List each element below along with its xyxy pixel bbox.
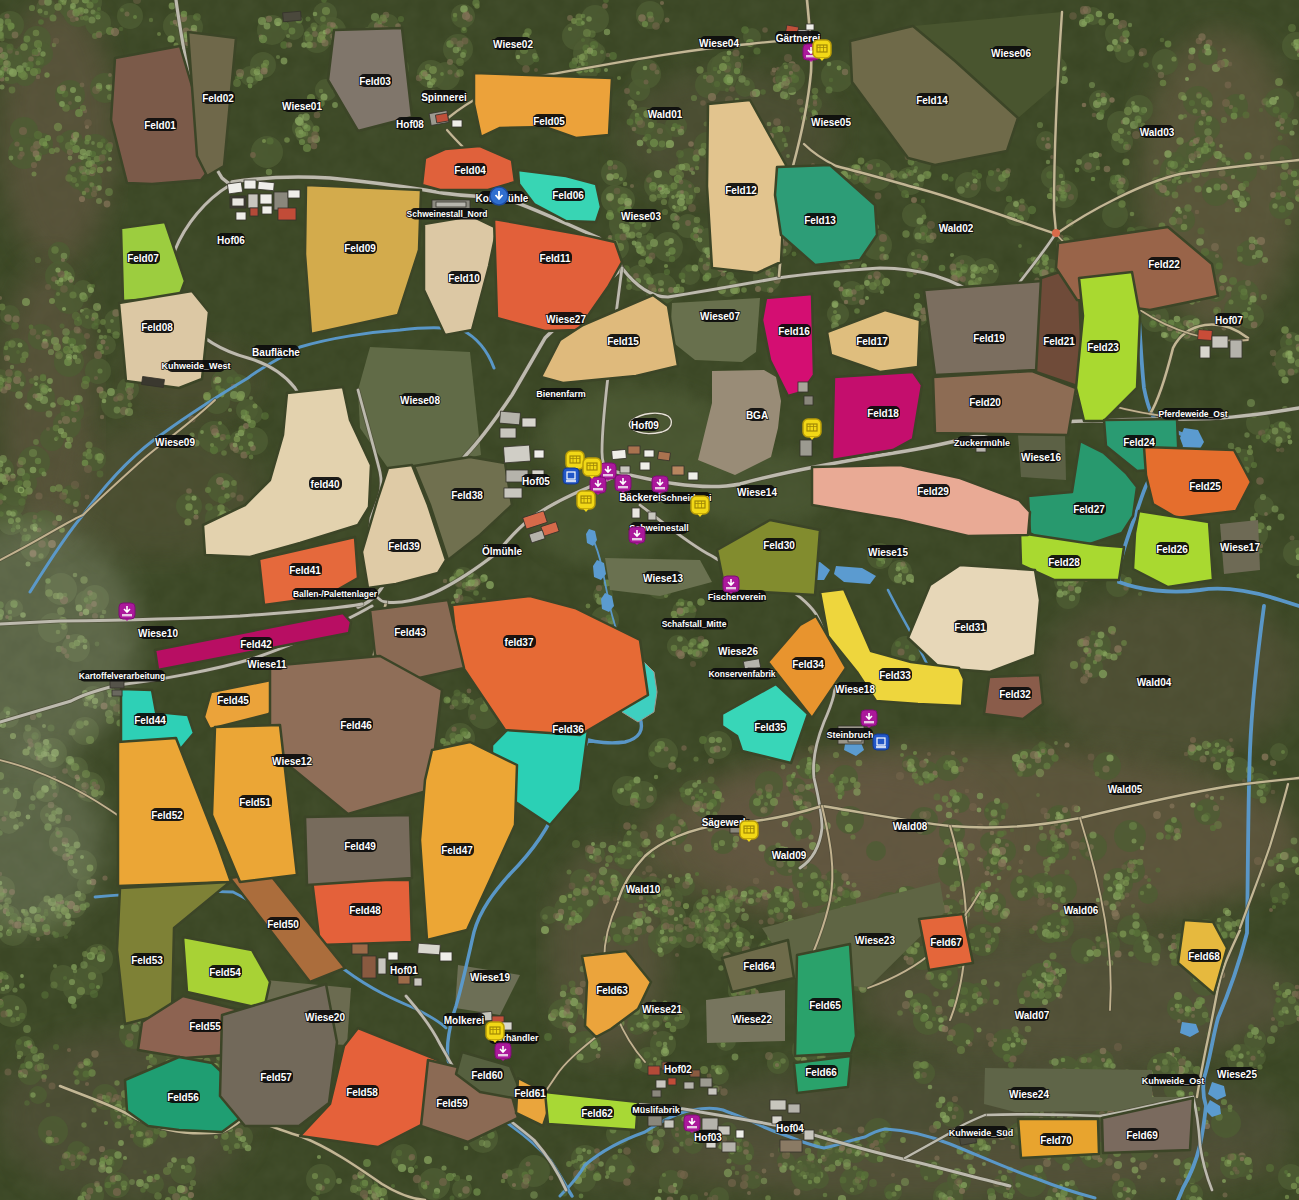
svg-text:Kuhweide_Ost: Kuhweide_Ost [1142,1076,1205,1086]
svg-text:BGA: BGA [746,410,768,421]
svg-text:Wiese10: Wiese10 [138,628,178,639]
svg-text:Feld19: Feld19 [973,333,1005,344]
svg-text:Hof02: Hof02 [664,1064,692,1075]
svg-text:Feld39: Feld39 [388,541,420,552]
svg-text:Feld69: Feld69 [1126,1130,1158,1141]
svg-text:Feld45: Feld45 [217,695,249,706]
svg-text:Feld03: Feld03 [359,76,391,87]
svg-text:Wiese19: Wiese19 [470,972,510,983]
svg-text:Wiese13: Wiese13 [643,573,683,584]
svg-text:Feld49: Feld49 [344,841,376,852]
svg-text:Feld24: Feld24 [1123,437,1155,448]
svg-text:Feld64: Feld64 [743,961,775,972]
svg-text:Wiese26: Wiese26 [718,646,758,657]
svg-text:Wiese11: Wiese11 [247,659,287,670]
svg-text:Feld08: Feld08 [141,322,173,333]
svg-text:Feld46: Feld46 [340,720,372,731]
svg-text:Wiese17: Wiese17 [1220,542,1260,553]
svg-text:Schafstall_Mitte: Schafstall_Mitte [662,619,727,629]
svg-text:Feld17: Feld17 [856,336,888,347]
svg-text:Wiese16: Wiese16 [1021,452,1061,463]
svg-text:Feld07: Feld07 [127,253,159,264]
svg-text:Hof08: Hof08 [396,119,424,130]
svg-text:Feld32: Feld32 [999,689,1031,700]
svg-text:Feld20: Feld20 [969,397,1001,408]
svg-text:Feld04: Feld04 [454,165,486,176]
svg-text:Hof07: Hof07 [1215,315,1243,326]
svg-text:Wald09: Wald09 [772,850,807,861]
svg-text:Feld02: Feld02 [202,93,234,104]
svg-text:Wiese01: Wiese01 [282,101,322,112]
svg-text:Feld56: Feld56 [167,1092,199,1103]
svg-text:feld37: feld37 [505,637,534,648]
svg-text:Feld54: Feld54 [209,967,241,978]
svg-text:Spinnerei: Spinnerei [421,92,467,103]
svg-text:Feld11: Feld11 [539,253,571,264]
svg-text:Feld47: Feld47 [441,845,473,856]
svg-text:Feld25: Feld25 [1189,481,1221,492]
svg-text:Fischerverein: Fischerverein [708,592,767,602]
svg-text:Feld57: Feld57 [260,1072,292,1083]
svg-text:Feld53: Feld53 [131,955,163,966]
svg-text:Feld41: Feld41 [289,565,321,576]
svg-text:Wiese21: Wiese21 [642,1004,682,1015]
svg-text:Feld23: Feld23 [1087,342,1119,353]
svg-text:Pferdeweide_Ost: Pferdeweide_Ost [1159,409,1228,419]
svg-text:Hof03: Hof03 [694,1132,722,1143]
svg-text:Wiese12: Wiese12 [272,756,312,767]
svg-text:Feld62: Feld62 [581,1108,613,1119]
svg-text:Feld34: Feld34 [792,659,824,670]
svg-text:Kuhweide_West: Kuhweide_West [162,361,231,371]
svg-text:Bienenfarm: Bienenfarm [536,389,586,399]
svg-text:Wiese18: Wiese18 [835,684,875,695]
svg-text:Wald03: Wald03 [1140,127,1175,138]
svg-text:Feld16: Feld16 [778,326,810,337]
svg-text:Kuhweide_Süd: Kuhweide_Süd [949,1128,1014,1138]
svg-text:Wald08: Wald08 [893,821,928,832]
svg-text:Wiese14: Wiese14 [737,487,777,498]
svg-text:Wiese04: Wiese04 [699,38,739,49]
svg-text:Feld06: Feld06 [552,190,584,201]
svg-text:Feld10: Feld10 [448,273,480,284]
svg-text:Feld70: Feld70 [1040,1135,1072,1146]
svg-text:Feld15: Feld15 [607,336,639,347]
svg-text:Feld27: Feld27 [1073,504,1105,515]
svg-text:Hof09: Hof09 [631,420,659,431]
svg-text:Wald10: Wald10 [626,884,661,895]
svg-text:Wiese09: Wiese09 [155,437,195,448]
svg-text:Ballen-/Palettenlager: Ballen-/Palettenlager [293,589,378,599]
svg-text:Feld29: Feld29 [917,486,949,497]
svg-text:Wiese23: Wiese23 [855,935,895,946]
svg-text:Feld38: Feld38 [451,490,483,501]
svg-text:Hof04: Hof04 [776,1123,804,1134]
svg-text:Wiese02: Wiese02 [493,39,533,50]
svg-text:Wiese03: Wiese03 [621,211,661,222]
svg-text:Feld36: Feld36 [552,724,584,735]
svg-text:Feld12: Feld12 [725,185,757,196]
svg-text:Feld44: Feld44 [134,715,166,726]
svg-text:Feld31: Feld31 [954,622,986,633]
svg-text:Ölmühle: Ölmühle [482,545,522,557]
svg-text:Hof01: Hof01 [390,965,418,976]
svg-text:Feld51: Feld51 [239,797,271,808]
svg-text:Feld66: Feld66 [805,1067,837,1078]
svg-text:Bäckerei: Bäckerei [619,492,661,503]
svg-text:Schweinestall_Nord: Schweinestall_Nord [407,209,488,219]
svg-text:Feld09: Feld09 [344,243,376,254]
svg-text:Feld59: Feld59 [436,1098,468,1109]
svg-text:Feld35: Feld35 [754,722,786,733]
svg-text:Müslifabrik: Müslifabrik [632,1105,681,1115]
svg-text:Feld58: Feld58 [346,1087,378,1098]
svg-text:Wiese15: Wiese15 [868,547,908,558]
svg-text:Hof05: Hof05 [522,476,550,487]
svg-text:Feld21: Feld21 [1043,336,1075,347]
svg-text:Wald02: Wald02 [939,223,974,234]
svg-text:Kartoffelverarbeitung: Kartoffelverarbeitung [79,671,165,681]
svg-text:Wald01: Wald01 [648,109,683,120]
svg-text:Feld05: Feld05 [533,116,565,127]
svg-text:Feld42: Feld42 [240,639,272,650]
svg-text:Wiese05: Wiese05 [811,117,851,128]
svg-text:Baufläche: Baufläche [252,347,300,358]
svg-text:Wald05: Wald05 [1108,784,1143,795]
svg-text:Feld65: Feld65 [809,1000,841,1011]
svg-text:Feld33: Feld33 [879,670,911,681]
svg-text:Feld61: Feld61 [514,1088,546,1099]
svg-text:Steinbruch: Steinbruch [826,730,873,740]
svg-text:Feld67: Feld67 [930,937,962,948]
svg-text:Wiese25: Wiese25 [1217,1069,1257,1080]
svg-text:Feld60: Feld60 [471,1070,503,1081]
svg-text:Feld14: Feld14 [916,95,948,106]
svg-text:Hof06: Hof06 [217,235,245,246]
svg-text:Feld43: Feld43 [394,627,426,638]
svg-text:Wald07: Wald07 [1015,1010,1050,1021]
svg-text:Wald04: Wald04 [1137,677,1172,688]
svg-text:Feld28: Feld28 [1048,557,1080,568]
svg-text:Wiese22: Wiese22 [732,1014,772,1025]
svg-text:Wald06: Wald06 [1064,905,1099,916]
svg-text:Wiese08: Wiese08 [400,395,440,406]
svg-text:Feld01: Feld01 [144,120,176,131]
svg-text:Feld52: Feld52 [151,810,183,821]
svg-text:Wiese27: Wiese27 [546,314,586,325]
svg-text:Feld55: Feld55 [189,1021,221,1032]
svg-text:Feld63: Feld63 [596,985,628,996]
svg-text:Feld13: Feld13 [804,215,836,226]
svg-text:Feld22: Feld22 [1148,259,1180,270]
svg-text:Feld26: Feld26 [1156,544,1188,555]
svg-text:Feld50: Feld50 [267,919,299,930]
svg-text:Molkerei: Molkerei [444,1015,485,1026]
svg-text:Zuckermühle: Zuckermühle [954,438,1010,448]
svg-text:Feld48: Feld48 [349,905,381,916]
svg-text:Feld30: Feld30 [763,540,795,551]
svg-text:Wiese06: Wiese06 [991,48,1031,59]
svg-text:Feld68: Feld68 [1188,951,1220,962]
svg-text:Wiese07: Wiese07 [700,311,740,322]
svg-text:Wiese20: Wiese20 [305,1012,345,1023]
svg-text:Konservenfabrik: Konservenfabrik [708,669,775,679]
svg-text:feld40: feld40 [311,479,340,490]
svg-text:Feld18: Feld18 [867,408,899,419]
svg-text:Wiese24: Wiese24 [1009,1089,1049,1100]
